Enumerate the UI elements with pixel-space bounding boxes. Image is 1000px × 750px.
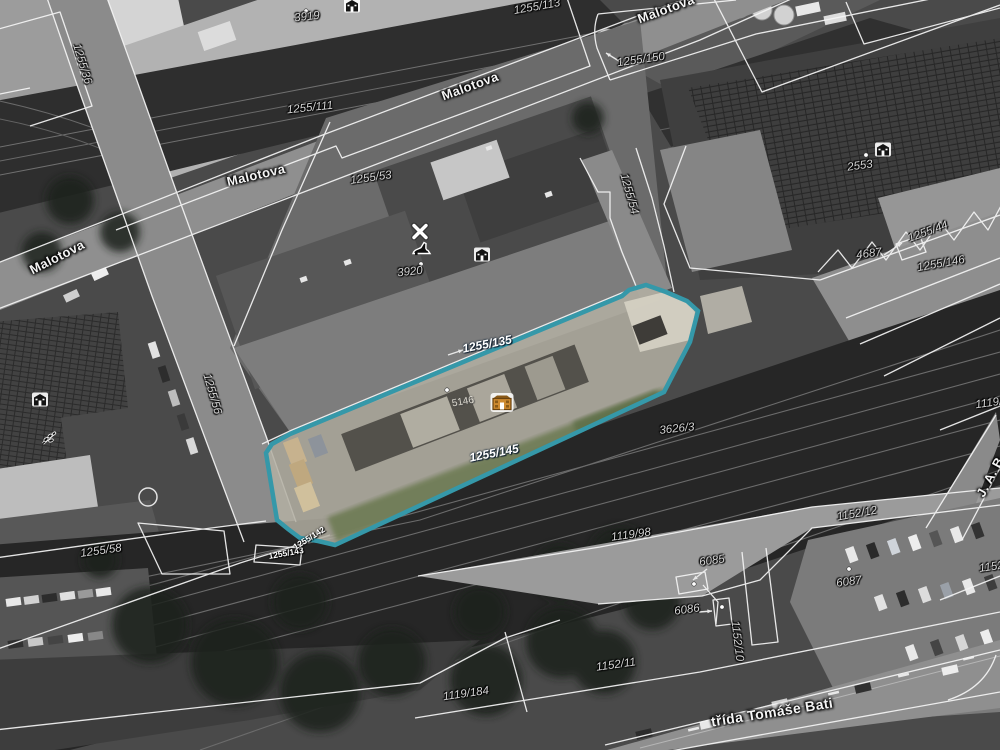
building-icon xyxy=(473,247,491,263)
poi-building-icon[interactable] xyxy=(490,393,514,418)
point-marker xyxy=(847,567,851,571)
map-canvas[interactable]: 39191255/1131255/1111255/1501255/36Malot… xyxy=(0,0,1000,750)
point-marker xyxy=(304,9,308,13)
building-icon xyxy=(343,0,361,19)
leaf-icon xyxy=(40,431,58,452)
building-icon xyxy=(874,142,892,158)
building-icon xyxy=(874,142,892,163)
point-marker xyxy=(864,153,868,157)
building-icon xyxy=(343,0,361,14)
building-icon xyxy=(473,247,491,268)
building-icon xyxy=(31,392,49,413)
shoe-icon xyxy=(412,242,432,261)
x-icon xyxy=(410,222,430,242)
building-icon xyxy=(31,392,49,408)
point-marker xyxy=(692,582,696,586)
shoe-icon xyxy=(412,242,432,256)
point-marker xyxy=(419,262,423,266)
point-marker xyxy=(445,388,449,392)
aerial-imagery xyxy=(0,0,1000,750)
poi-building-icon[interactable] xyxy=(490,393,514,413)
point-marker xyxy=(720,605,724,609)
leaf-icon xyxy=(40,431,58,447)
